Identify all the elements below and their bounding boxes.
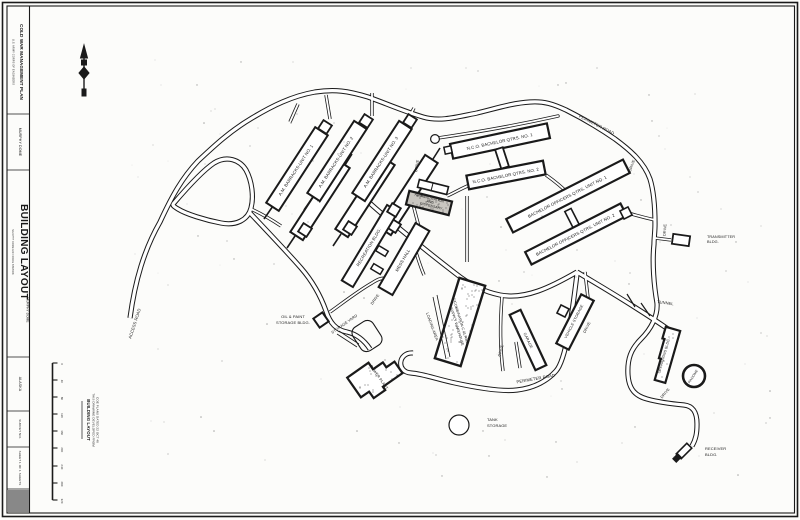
svg-text:THIS DRAWING DEVELOPED FROM: THIS DRAWING DEVELOPED FROM	[92, 393, 96, 447]
svg-text:240: 240	[60, 464, 64, 469]
svg-text:PERIMETER ROAD: PERIMETER ROAD	[578, 114, 615, 136]
svg-text:U.S. ARMY CORPS OF ENGINEERS: U.S. ARMY CORPS OF ENGINEERS	[12, 39, 16, 85]
svg-text:DRIVE: DRIVE	[662, 223, 667, 236]
svg-text:MURPHY DOME: MURPHY DOME	[26, 297, 30, 322]
svg-text:DRIVE: DRIVE	[583, 321, 592, 334]
svg-text:ALASKA: ALASKA	[18, 377, 22, 392]
svg-text:DRIVE: DRIVE	[498, 344, 505, 357]
svg-text:0: 0	[60, 363, 64, 365]
svg-text:MURPHY DOME: MURPHY DOME	[18, 128, 22, 157]
svg-text:STORAGE: STORAGE	[487, 423, 507, 428]
svg-text:40: 40	[60, 380, 64, 384]
svg-text:320: 320	[60, 499, 64, 504]
svg-text:A.M. BARRACKS-UNIT NO. 1: A.M. BARRACKS-UNIT NO. 1	[277, 143, 314, 196]
svg-text:BLDG.: BLDG.	[707, 240, 719, 244]
svg-text:COE PLANS DATED 22 OCT 48: COE PLANS DATED 22 OCT 48	[96, 397, 100, 443]
svg-text:BUILDING LAYOUT: BUILDING LAYOUT	[86, 399, 91, 441]
svg-text:280: 280	[60, 482, 64, 487]
svg-text:BUILDING LAYOUT: BUILDING LAYOUT	[18, 204, 29, 300]
svg-text:160: 160	[60, 430, 64, 435]
svg-text:120: 120	[60, 413, 64, 418]
svg-text:80: 80	[60, 397, 64, 401]
svg-text:SHEET 1 OF 1 SHEETS: SHEET 1 OF 1 SHEETS	[18, 451, 22, 486]
svg-text:MURPHY DOME AIR FORCE STATION: MURPHY DOME AIR FORCE STATION	[11, 229, 14, 274]
svg-text:OIL & PAINT: OIL & PAINT	[281, 314, 305, 319]
svg-text:SURVEY NO.: SURVEY NO.	[18, 419, 22, 438]
svg-text:DRIVE: DRIVE	[628, 159, 636, 172]
svg-text:RECEIVER: RECEIVER	[705, 446, 726, 451]
svg-text:BLDG.: BLDG.	[705, 452, 718, 457]
svg-text:200: 200	[60, 447, 64, 452]
svg-text:DRIVE: DRIVE	[660, 387, 671, 399]
svg-text:TANK: TANK	[487, 417, 498, 422]
svg-text:TRANSMITTER: TRANSMITTER	[707, 235, 735, 239]
svg-text:COLD WAR MANAGEMENT PLAN: COLD WAR MANAGEMENT PLAN	[19, 24, 24, 100]
svg-text:STORAGE BLDG.: STORAGE BLDG.	[276, 320, 310, 325]
svg-text:DRIVE: DRIVE	[370, 293, 380, 306]
